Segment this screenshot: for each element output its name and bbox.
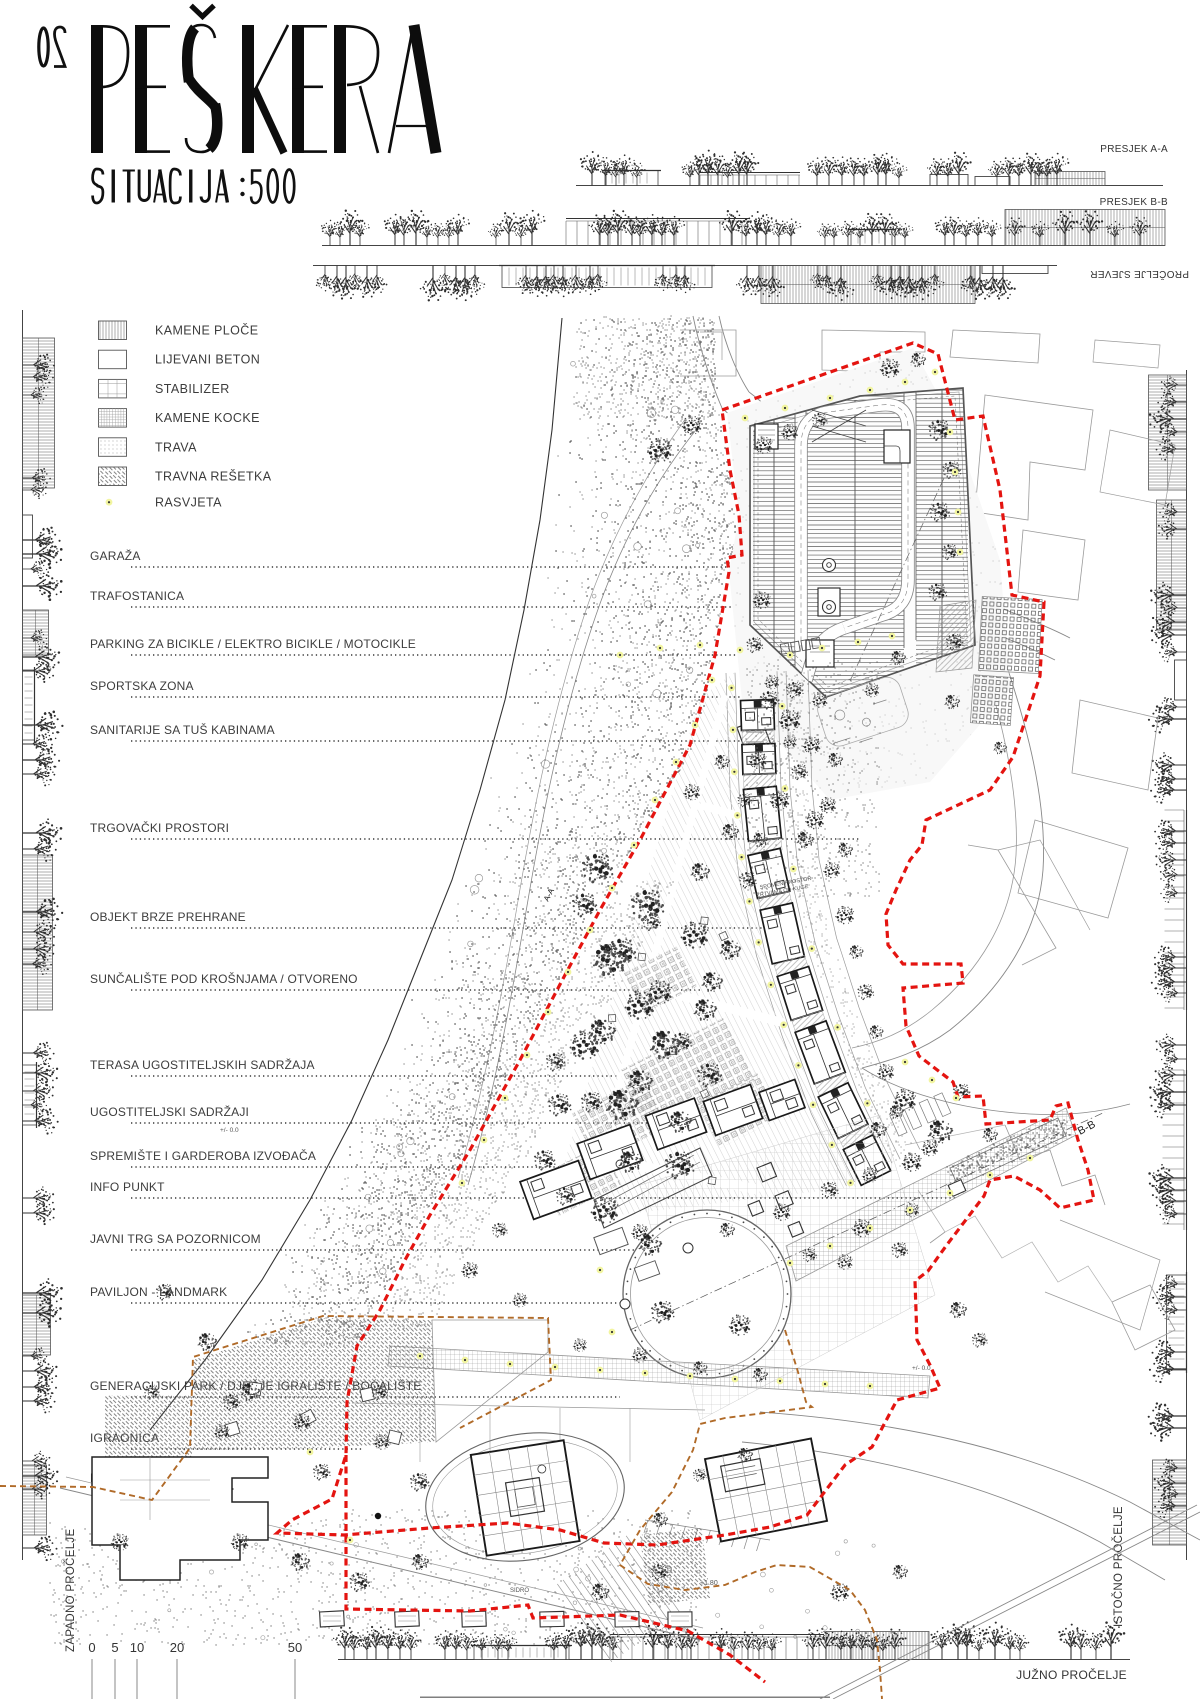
- svg-text:SIDRO: SIDRO: [510, 1588, 529, 1594]
- svg-text:TRGOVAČKI PROSTORI: TRGOVAČKI PROSTORI: [90, 820, 229, 835]
- svg-text:PAVILJON - LANDMARK: PAVILJON - LANDMARK: [90, 1285, 227, 1299]
- svg-text:SANITARIJE SA TUŠ KABINAMA: SANITARIJE SA TUŠ KABINAMA: [90, 722, 275, 737]
- svg-text:5: 5: [111, 1640, 118, 1655]
- svg-text:JAVNI TRG SA POZORNICOM: JAVNI TRG SA POZORNICOM: [90, 1232, 261, 1246]
- svg-text:10: 10: [130, 1640, 144, 1655]
- svg-text:GARAŽA: GARAŽA: [90, 548, 141, 563]
- svg-text:PRESJEK A-A: PRESJEK A-A: [1100, 144, 1168, 155]
- svg-text:OBJEKT BRZE PREHRANE: OBJEKT BRZE PREHRANE: [90, 910, 246, 924]
- svg-text:+/- 0.0: +/- 0.0: [220, 1127, 239, 1134]
- svg-text:TRAFOSTANICA: TRAFOSTANICA: [90, 589, 184, 603]
- svg-text:STABILIZER: STABILIZER: [155, 382, 230, 396]
- svg-text:+/- 0.0: +/- 0.0: [912, 1365, 931, 1372]
- svg-text:KAMENE PLOČE: KAMENE PLOČE: [155, 323, 258, 338]
- svg-text:PARKING ZA BICIKLE / ELEKTRO B: PARKING ZA BICIKLE / ELEKTRO BICIKLE / M…: [90, 637, 416, 651]
- svg-text:LIJEVANI BETON: LIJEVANI BETON: [155, 353, 260, 367]
- svg-text:ISTOČNO PROČELJE: ISTOČNO PROČELJE: [1112, 1506, 1125, 1627]
- svg-text:JUŽNO PROČELJE: JUŽNO PROČELJE: [1016, 1667, 1127, 1682]
- svg-text:PROČELJE SJEVER: PROČELJE SJEVER: [1090, 268, 1189, 281]
- svg-text:SPREMIŠTE I GARDEROBA IZVOĐAČA: SPREMIŠTE I GARDEROBA IZVOĐAČA: [90, 1148, 316, 1163]
- svg-text:TRAVNA REŠETKA: TRAVNA REŠETKA: [155, 469, 272, 484]
- svg-text:SUNČALIŠTE POD KROŠNJAMA / OTV: SUNČALIŠTE POD KROŠNJAMA / OTVORENO: [90, 971, 358, 986]
- svg-text:50: 50: [288, 1640, 302, 1655]
- svg-text:PRESJEK B-B: PRESJEK B-B: [1100, 197, 1168, 208]
- svg-text:0: 0: [88, 1640, 95, 1655]
- svg-text:UGOSTITELJSKI SADRŽAJI: UGOSTITELJSKI SADRŽAJI: [90, 1104, 249, 1119]
- svg-text:TERASA UGOSTITELJSKIH SADRŽAJA: TERASA UGOSTITELJSKIH SADRŽAJA: [90, 1057, 315, 1072]
- svg-text:RASVJETA: RASVJETA: [155, 496, 222, 510]
- svg-text:INFO PUNKT: INFO PUNKT: [90, 1180, 165, 1194]
- svg-text:SPORTSKA ZONA: SPORTSKA ZONA: [90, 679, 194, 693]
- svg-text:TRAVA: TRAVA: [155, 440, 197, 454]
- svg-text:KAMENE KOCKE: KAMENE KOCKE: [155, 411, 260, 425]
